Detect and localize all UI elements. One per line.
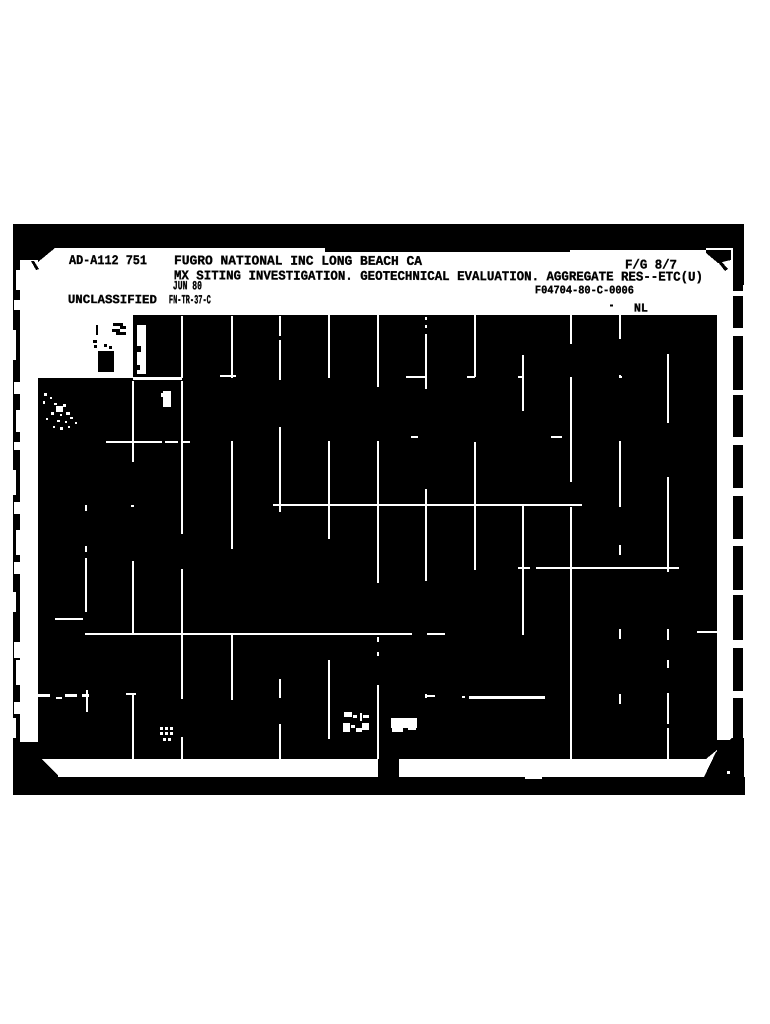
svg-text:AD-A112 751: AD-A112 751	[69, 253, 147, 268]
svg-text:JUN 80: JUN 80	[173, 279, 202, 293]
svg-text:MX SITING INVESTIGATION. GEOTE: MX SITING INVESTIGATION. GEOTECHNICAL EV…	[174, 268, 703, 284]
svg-text:NL: NL	[634, 301, 648, 315]
svg-text:F04704-80-C-0006: F04704-80-C-0006	[535, 284, 634, 297]
svg-text:FN-TR-37-C: FN-TR-37-C	[169, 293, 211, 307]
svg-text:FUGRO NATIONAL INC LONG BEACH: FUGRO NATIONAL INC LONG BEACH CA	[174, 253, 422, 269]
svg-text:UNCLASSIFIED: UNCLASSIFIED	[68, 293, 157, 307]
